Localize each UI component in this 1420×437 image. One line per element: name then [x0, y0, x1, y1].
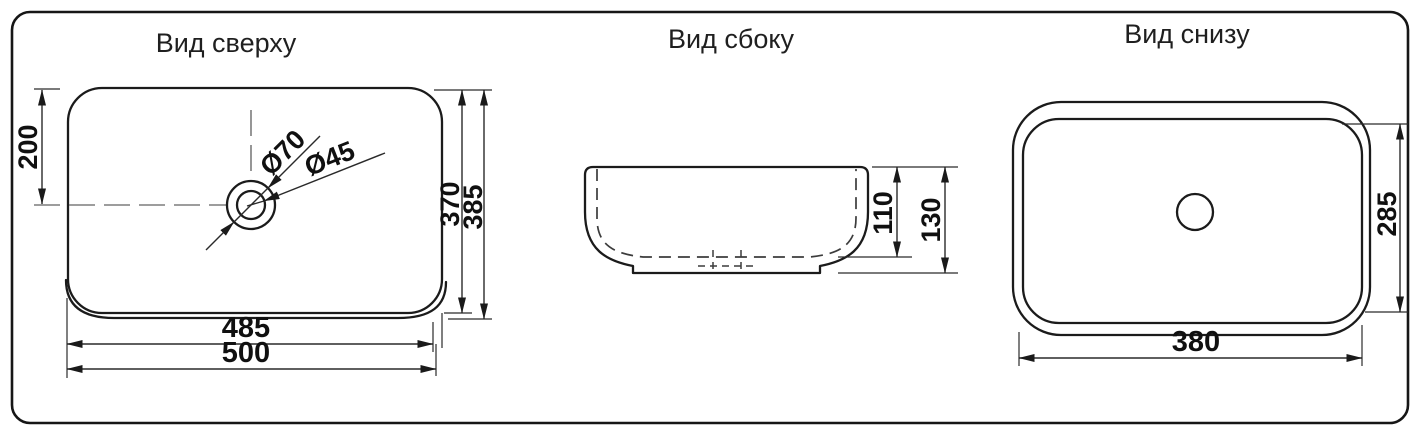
side-view-inner-profile-hidden	[597, 169, 856, 257]
drain-hole-diameter-line	[247, 201, 264, 206]
dim-380-label: 380	[1172, 326, 1220, 358]
bottom-view-title: Вид снизу	[1124, 19, 1250, 49]
dim-200-label: 200	[13, 124, 43, 169]
top-view: Вид сверху 200 Ø70 Ø45 370 385	[13, 28, 492, 378]
dim-110-label: 110	[868, 191, 898, 235]
side-view-title: Вид сбоку	[668, 24, 794, 54]
dim-130-label: 130	[916, 197, 946, 242]
bottom-view-outer-outline	[1013, 102, 1370, 335]
bottom-view: Вид снизу 285 380	[1013, 19, 1408, 366]
bottom-drain-circle	[1177, 194, 1213, 230]
dim-385-label: 385	[458, 184, 488, 229]
side-view: Вид сбоку 110 130	[585, 24, 958, 273]
sink-technical-drawing: Вид сверху 200 Ø70 Ø45 370 385	[0, 0, 1420, 437]
dim-500-label: 500	[222, 337, 270, 369]
dim-285-label: 285	[1372, 191, 1402, 236]
leader-arrow	[206, 222, 234, 250]
drawing-canvas: Вид сверху 200 Ø70 Ø45 370 385	[0, 0, 1420, 437]
bottom-view-base-outline	[1023, 119, 1362, 323]
top-view-title: Вид сверху	[156, 28, 297, 58]
